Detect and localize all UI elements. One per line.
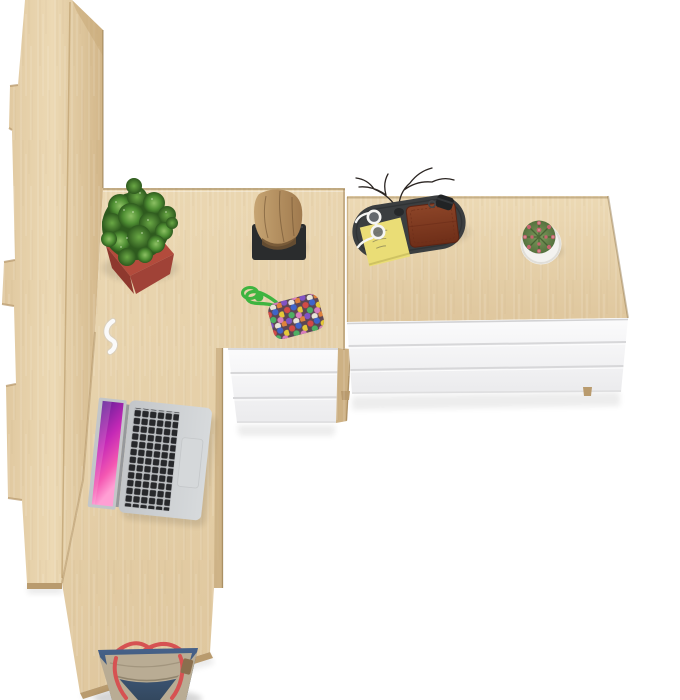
spine-dot — [544, 235, 547, 238]
branch-knot — [394, 208, 404, 216]
spine-dot — [527, 245, 531, 249]
product-photo — [0, 0, 680, 700]
leaf — [137, 247, 153, 263]
chest-foot — [583, 387, 592, 396]
leaf — [126, 178, 142, 194]
bookcase-bottom-edge — [27, 583, 62, 589]
pedestal-drawer-gap — [233, 397, 337, 398]
chest-drawer-front — [347, 318, 628, 394]
spine-dot — [527, 225, 531, 229]
pedestal-shadow — [237, 425, 336, 436]
laptop — [87, 396, 218, 527]
spine-dot — [547, 245, 551, 249]
cord-knot — [255, 293, 264, 302]
leaf — [166, 217, 178, 229]
glasses-lens — [368, 211, 380, 223]
pedestal-drawer-front — [228, 348, 338, 423]
pedestal-drawer-gap — [231, 372, 338, 373]
glasses-lens — [372, 226, 384, 238]
leaf — [101, 231, 117, 247]
spine-dot — [547, 225, 551, 229]
spine-dot — [537, 242, 540, 245]
tote-bag — [94, 643, 202, 700]
leaf — [118, 248, 136, 266]
spine-dot — [530, 235, 533, 238]
desk-pedestal — [228, 348, 351, 423]
